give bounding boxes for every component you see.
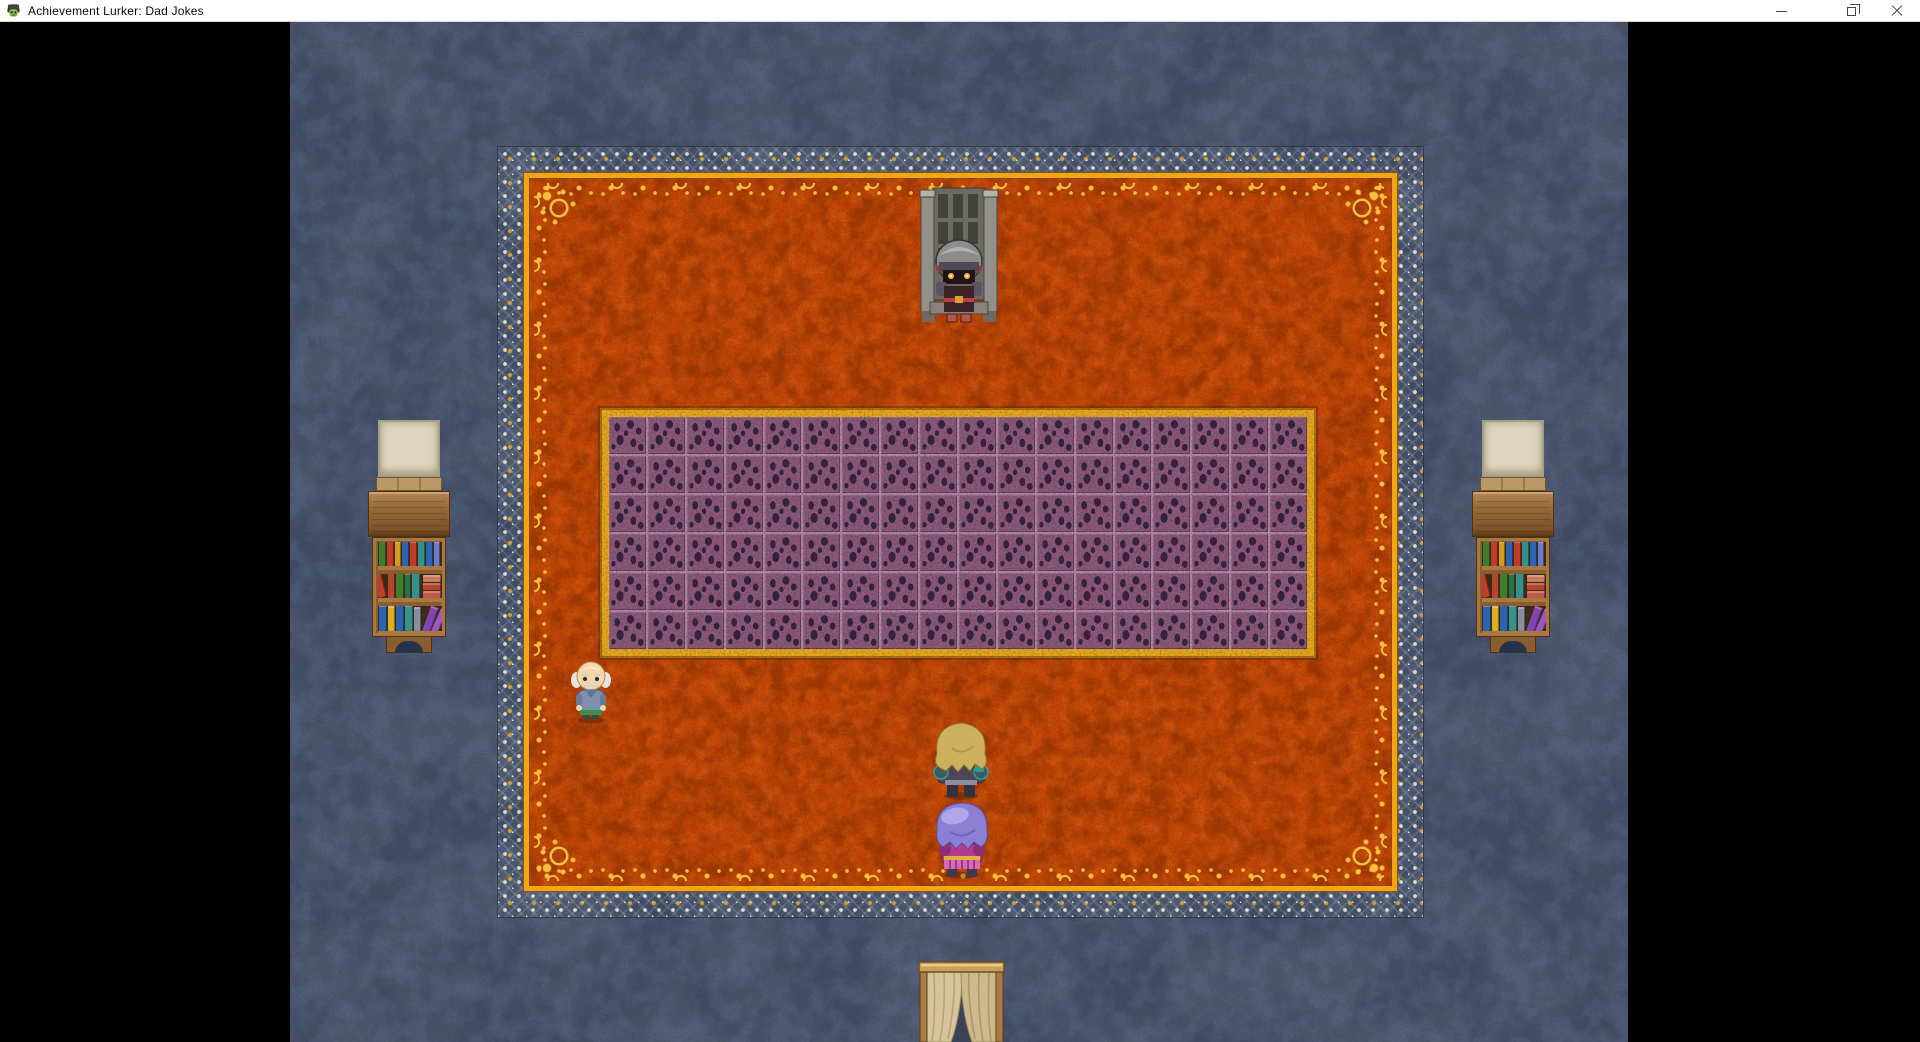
- floor-tile: [726, 495, 763, 532]
- floor-tile: [881, 456, 918, 493]
- floor-tile: [765, 612, 802, 649]
- book-spine: [396, 574, 404, 598]
- floor-tile: [765, 456, 802, 493]
- restore-icon: [1847, 7, 1856, 16]
- shelf-row: [378, 574, 442, 602]
- book-spine: [412, 574, 420, 598]
- floor-tile: [1037, 456, 1074, 493]
- floor-tile: [998, 573, 1035, 610]
- game-stage: [0, 22, 1920, 1042]
- floor-tile: [842, 573, 879, 610]
- floor-tile: [1270, 417, 1307, 454]
- floor-tile: [842, 612, 879, 649]
- floor-tile: [1076, 573, 1113, 610]
- book-spine: [1527, 591, 1545, 598]
- floor-tile: [803, 456, 840, 493]
- floor-tile: [1270, 573, 1307, 610]
- book-spine: [1492, 574, 1500, 598]
- shelf-row: [1482, 606, 1546, 634]
- floor-tile: [1115, 417, 1152, 454]
- book-spine: [395, 542, 401, 566]
- floor-tile: [687, 456, 724, 493]
- floor-tile: [881, 534, 918, 571]
- floor-tile: [998, 612, 1035, 649]
- old-man-npc[interactable]: [571, 658, 611, 724]
- floor-tile: [1037, 534, 1074, 571]
- floor-tile: [881, 573, 918, 610]
- book-spine: [405, 574, 412, 598]
- book-spine: [434, 542, 440, 566]
- book-spine: [378, 574, 386, 598]
- floor-tile: [803, 612, 840, 649]
- floor-tile: [998, 456, 1035, 493]
- floor-tile: [648, 612, 685, 649]
- floor-tile: [1115, 612, 1152, 649]
- book-spine: [379, 542, 386, 566]
- floor-tile: [803, 495, 840, 532]
- floor-tile: [687, 417, 724, 454]
- floor-tile: [648, 573, 685, 610]
- book-case: [372, 537, 446, 637]
- floor-tile: [959, 573, 996, 610]
- floor-tile: [609, 456, 646, 493]
- floor-tile: [726, 573, 763, 610]
- book-spine: [387, 542, 394, 566]
- floor-tile: [648, 495, 685, 532]
- book-spine: [1492, 606, 1499, 631]
- book-spine: [414, 607, 421, 631]
- floor-tile: [1076, 534, 1113, 571]
- book-spine: [1538, 542, 1544, 566]
- floor-tile: [1037, 573, 1074, 610]
- floor-tile: [648, 456, 685, 493]
- floor-tile: [609, 495, 646, 532]
- window-controls: [1758, 0, 1920, 21]
- app-icon: [6, 3, 21, 18]
- floor-tile: [609, 612, 646, 649]
- tile-grid: [609, 417, 1307, 649]
- floor-tile: [1153, 612, 1190, 649]
- floor-tile: [648, 417, 685, 454]
- follower-sprite[interactable]: [931, 800, 993, 879]
- stone-ledge: [1480, 477, 1546, 491]
- floor-tile: [648, 534, 685, 571]
- floor-tile: [1115, 534, 1152, 571]
- close-button[interactable]: [1874, 0, 1920, 22]
- book-spine: [388, 574, 396, 598]
- floor-tile: [726, 456, 763, 493]
- book-spine: [1514, 542, 1520, 566]
- floor-tile: [842, 456, 879, 493]
- floor-tile: [959, 534, 996, 571]
- stone-ledge: [376, 477, 442, 491]
- book-spine: [1500, 606, 1508, 631]
- floor-tile: [803, 573, 840, 610]
- floor-tile: [765, 495, 802, 532]
- floor-tile: [1076, 612, 1113, 649]
- book-spine: [1483, 606, 1491, 631]
- floor-tile: [1153, 495, 1190, 532]
- floor-tile: [609, 417, 646, 454]
- floor-tile: [1231, 612, 1268, 649]
- book-case: [1476, 537, 1550, 637]
- bookshelf-base: [386, 637, 432, 653]
- hero-sprite[interactable]: [930, 718, 992, 800]
- minimize-button[interactable]: [1758, 0, 1804, 22]
- floor-tile: [1153, 456, 1190, 493]
- shelf-row: [1482, 574, 1546, 602]
- floor-tile: [881, 495, 918, 532]
- floor-tile: [842, 534, 879, 571]
- book-spine: [396, 606, 404, 631]
- floor-tile: [842, 417, 879, 454]
- floor-tile: [1270, 534, 1307, 571]
- bookshelf-left: [368, 420, 450, 648]
- book-spine: [423, 575, 441, 582]
- shelf-row: [1482, 542, 1546, 570]
- floor-tile: [1192, 495, 1229, 532]
- floor-tile: [726, 534, 763, 571]
- floor-tile: [1231, 534, 1268, 571]
- book-spine: [1516, 574, 1524, 598]
- book-spine: [1491, 542, 1498, 566]
- floor-tile: [920, 495, 957, 532]
- floor-tile: [609, 534, 646, 571]
- bookshelf-base: [1490, 637, 1536, 653]
- tile-platform: [600, 408, 1316, 658]
- floor-tile: [1153, 573, 1190, 610]
- game-viewport[interactable]: [290, 22, 1628, 1042]
- floor-tile: [959, 456, 996, 493]
- floor-tile: [842, 495, 879, 532]
- book-spine: [1506, 542, 1513, 566]
- book-spine: [1509, 574, 1516, 598]
- bookshelf-right: [1472, 420, 1554, 648]
- floor-tile: [803, 417, 840, 454]
- book-spine: [405, 606, 413, 631]
- book-spine: [1522, 542, 1529, 566]
- book-spine: [402, 542, 409, 566]
- floor-tile: [998, 534, 1035, 571]
- floor-tile: [1231, 573, 1268, 610]
- floor-tile: [998, 495, 1035, 532]
- floor-tile: [687, 495, 724, 532]
- floor-tile: [920, 417, 957, 454]
- floor-tile: [687, 573, 724, 610]
- book-spine: [1499, 542, 1505, 566]
- floor-tile: [1115, 495, 1152, 532]
- book-spine: [410, 542, 416, 566]
- floor-tile: [803, 534, 840, 571]
- floor-tile: [920, 534, 957, 571]
- blank-canvas: [378, 420, 440, 477]
- floor-tile: [1192, 573, 1229, 610]
- floor-tile: [1270, 495, 1307, 532]
- curtained-doorway[interactable]: [918, 961, 1005, 1042]
- floor-tile: [609, 573, 646, 610]
- floor-tile: [1153, 417, 1190, 454]
- floor-tile: [1037, 417, 1074, 454]
- book-spine: [423, 591, 441, 598]
- floor-tile: [726, 612, 763, 649]
- floor-tile: [959, 495, 996, 532]
- floor-tile: [1231, 456, 1268, 493]
- book-spine: [426, 542, 433, 566]
- wooden-desk-top: [368, 491, 450, 537]
- floor-tile: [1192, 534, 1229, 571]
- floor-tile: [998, 417, 1035, 454]
- book-spine: [1527, 583, 1545, 590]
- floor-tile: [726, 417, 763, 454]
- floor-tile: [881, 612, 918, 649]
- floor-tile: [687, 534, 724, 571]
- floor-tile: [920, 573, 957, 610]
- floor-tile: [1037, 495, 1074, 532]
- book-spine: [1530, 542, 1537, 566]
- book-spine: [1509, 606, 1517, 631]
- floor-tile: [920, 456, 957, 493]
- floor-tile: [1231, 495, 1268, 532]
- floor-tile: [1192, 456, 1229, 493]
- book-spine: [379, 606, 387, 631]
- book-spine: [418, 542, 425, 566]
- floor-tile: [959, 612, 996, 649]
- floor-tile: [765, 417, 802, 454]
- restore-button[interactable]: [1828, 0, 1874, 22]
- floor-tile: [687, 612, 724, 649]
- floor-tile: [1270, 456, 1307, 493]
- floor-tile: [1115, 456, 1152, 493]
- close-icon: [1891, 5, 1903, 17]
- window-title: Achievement Lurker: Dad Jokes: [28, 4, 204, 18]
- floor-tile: [765, 573, 802, 610]
- floor-tile: [1076, 417, 1113, 454]
- floor-tile: [1192, 612, 1229, 649]
- floor-tile: [920, 612, 957, 649]
- wooden-desk-top: [1472, 491, 1554, 537]
- book-spine: [1500, 574, 1508, 598]
- control-spacer: [1804, 0, 1828, 22]
- book-spine: [1527, 575, 1545, 582]
- floor-tile: [1153, 534, 1190, 571]
- titlebar[interactable]: Achievement Lurker: Dad Jokes: [0, 0, 1920, 22]
- book-spine: [388, 606, 395, 631]
- floor-tile: [1115, 573, 1152, 610]
- shelf-row: [378, 606, 442, 634]
- book-spine: [423, 583, 441, 590]
- shelf-row: [378, 542, 442, 570]
- blank-canvas: [1482, 420, 1544, 477]
- floor-tile: [1076, 456, 1113, 493]
- floor-tile: [959, 417, 996, 454]
- floor-tile: [881, 417, 918, 454]
- book-spine: [1482, 574, 1490, 598]
- floor-tile: [765, 534, 802, 571]
- book-spine: [1518, 607, 1525, 631]
- minimize-icon: [1776, 11, 1787, 12]
- floor-tile: [1192, 417, 1229, 454]
- floor-tile: [1231, 417, 1268, 454]
- floor-tile: [1270, 612, 1307, 649]
- book-spine: [1483, 542, 1490, 566]
- floor-tile: [1037, 612, 1074, 649]
- floor-tile: [1076, 495, 1113, 532]
- throne-dark-knight[interactable]: [918, 186, 1000, 330]
